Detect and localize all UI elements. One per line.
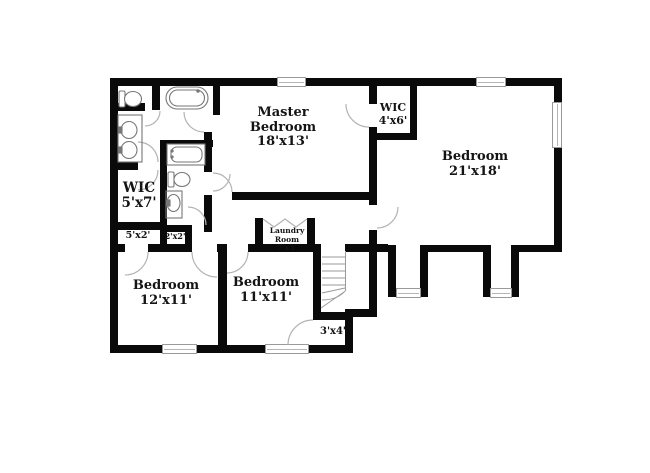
- closet-label-3x4: 3'x4': [318, 326, 348, 337]
- room-name: Bedroom: [116, 279, 216, 294]
- wall: [110, 78, 118, 353]
- linework-layer: [0, 0, 650, 473]
- wall: [232, 192, 375, 200]
- wall: [110, 244, 125, 252]
- room-dims: 5'x2': [117, 230, 159, 241]
- wall: [428, 245, 483, 252]
- room-dims: 21'x18': [425, 165, 525, 180]
- room-label-bedroom-12x11: Bedroom 12'x11': [116, 279, 216, 308]
- door-arc-bedroom12-entry: [192, 252, 217, 277]
- room-label-wic-4x6: WIC 4'x6': [368, 102, 418, 127]
- wall: [204, 195, 212, 232]
- staircase: [321, 251, 346, 308]
- room-dims: 11'x11': [216, 291, 316, 306]
- door-arc-closet5x2: [125, 252, 148, 275]
- window-bottom-bedroom12: [162, 344, 197, 354]
- double-sink-icon: [118, 115, 142, 162]
- wall: [118, 162, 138, 170]
- wall: [388, 245, 396, 297]
- wall: [369, 133, 417, 140]
- door-arc-hallbath-side: [213, 174, 230, 191]
- door-arc-closet3x4: [288, 320, 313, 345]
- window-right-bedroom21: [552, 102, 562, 148]
- room-name: Bedroom: [425, 150, 525, 165]
- room-label-bedroom-21x18: Bedroom 21'x18': [425, 150, 525, 179]
- wall: [217, 244, 227, 252]
- room-label-bedroom-11x11: Bedroom 11'x11': [216, 276, 316, 305]
- room-dims: 5'x7': [109, 196, 169, 211]
- room-dims: 7'x3': [261, 244, 313, 253]
- wall: [511, 245, 519, 297]
- room-name: WIC: [368, 102, 418, 115]
- toilet2-icon: [168, 172, 190, 187]
- wall: [313, 312, 350, 320]
- room-label-laundry: Laundry Room 7'x3': [261, 227, 313, 253]
- wall: [519, 245, 562, 252]
- closet-label-5x2: 5'x2': [117, 230, 159, 241]
- room-name: WIC: [109, 181, 169, 196]
- door-arc-bedroom21-entry: [377, 207, 398, 228]
- door-arc-master-entry: [213, 173, 232, 192]
- door-arc-vanity: [138, 142, 158, 162]
- window-bay2: [490, 288, 512, 298]
- room-label-wic-5x7: WIC 5'x7': [109, 181, 169, 211]
- room-name2: Bedroom: [233, 121, 333, 136]
- wall: [345, 244, 388, 252]
- room-name: Bedroom: [216, 276, 316, 291]
- wall: [213, 86, 220, 115]
- room-label-master-bedroom: Master Bedroom 18'x13': [233, 106, 333, 150]
- bathtub2-icon: [167, 144, 205, 165]
- wall: [420, 245, 428, 297]
- room-dims: 2'x2': [163, 232, 187, 241]
- room-dims: 4'x6': [368, 115, 418, 128]
- room-dims: 12'x11': [116, 294, 216, 309]
- door-arc-toilet-room: [145, 111, 160, 126]
- wall: [110, 345, 353, 353]
- door-arc-bedroom11-entry: [227, 252, 248, 273]
- closet-label-2x2: 2'x2': [163, 232, 187, 241]
- room-dims: 3'x4': [318, 326, 348, 337]
- room-dims: 18'x13': [233, 135, 333, 150]
- window-bottom-bedroom11: [265, 344, 309, 354]
- room-name: Master: [233, 106, 333, 121]
- window-top-bedroom21: [476, 77, 506, 87]
- floor-plan: Master Bedroom 18'x13' WIC 4'x6' Bedroom…: [0, 0, 650, 473]
- wall: [118, 103, 145, 111]
- window-bay1: [396, 288, 421, 298]
- window-top-master: [277, 77, 306, 87]
- door-arc-wic4x6: [346, 104, 369, 127]
- bathtub-icon: [166, 87, 208, 109]
- wall: [148, 244, 192, 252]
- wall: [204, 132, 212, 172]
- door-arc-masterbath: [184, 112, 204, 132]
- wall: [152, 86, 160, 110]
- wall: [118, 222, 167, 230]
